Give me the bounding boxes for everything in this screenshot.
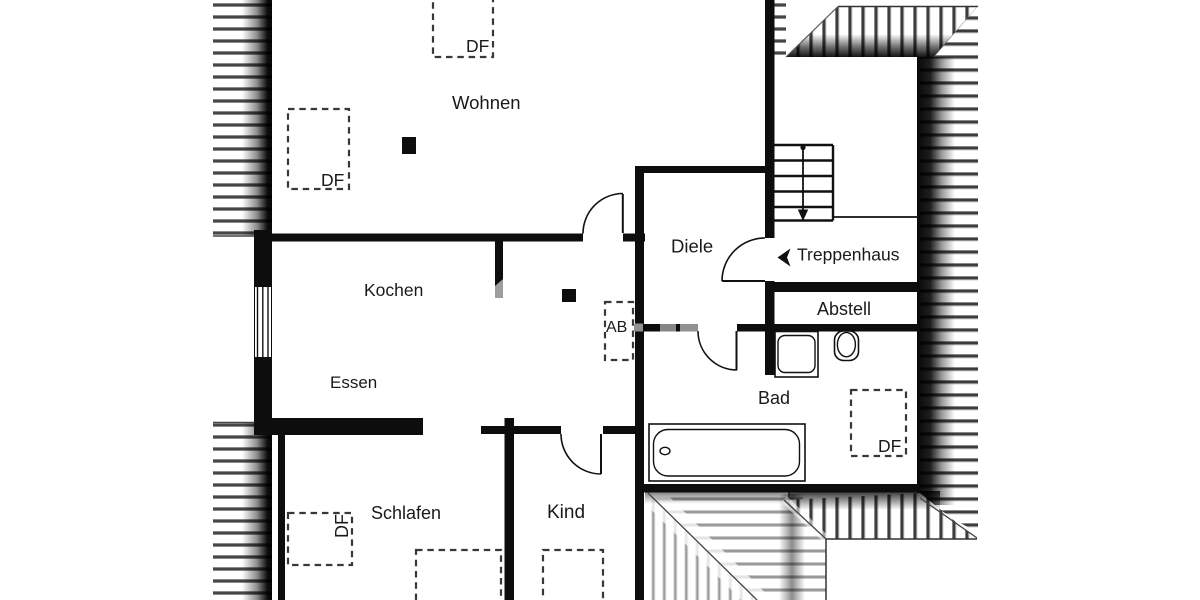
svg-text:Wohnen: Wohnen — [452, 92, 521, 113]
svg-text:Treppenhaus: Treppenhaus — [797, 245, 900, 265]
svg-text:DF: DF — [878, 436, 901, 456]
svg-text:Abstell: Abstell — [817, 299, 871, 319]
svg-text:Kind: Kind — [547, 502, 585, 523]
svg-text:DF: DF — [332, 514, 352, 538]
svg-text:Essen: Essen — [330, 373, 377, 392]
svg-text:Schlafen: Schlafen — [371, 503, 441, 523]
svg-text:DF: DF — [321, 170, 344, 190]
svg-text:Diele: Diele — [671, 236, 713, 257]
svg-text:DF: DF — [466, 36, 489, 56]
svg-text:AB: AB — [606, 319, 627, 336]
svg-text:Bad: Bad — [758, 388, 790, 408]
svg-text:Kochen: Kochen — [364, 280, 423, 300]
